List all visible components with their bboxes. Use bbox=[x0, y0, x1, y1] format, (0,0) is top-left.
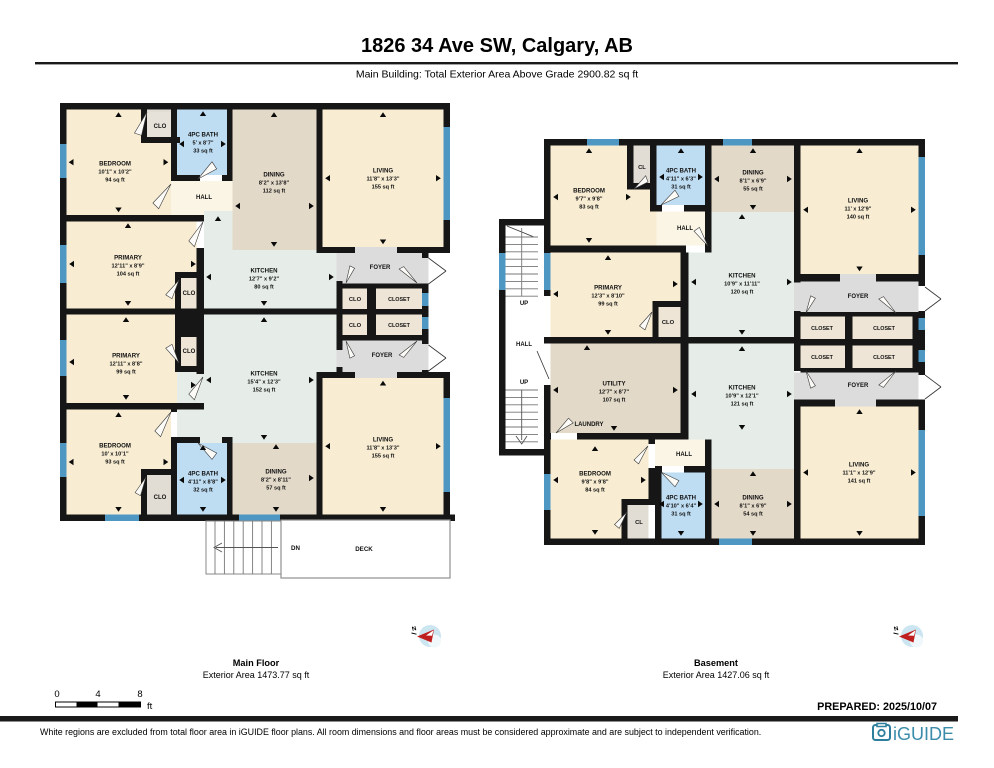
svg-text:5’ x 8’7": 5’ x 8’7" bbox=[192, 141, 213, 147]
svg-text:BEDROOM: BEDROOM bbox=[99, 443, 131, 450]
svg-text:8: 8 bbox=[137, 689, 142, 700]
svg-text:White regions are excluded fro: White regions are excluded from total fl… bbox=[40, 727, 761, 737]
svg-text:FOYER: FOYER bbox=[848, 383, 869, 389]
svg-text:DINING: DINING bbox=[742, 170, 764, 177]
svg-text:UTILITY: UTILITY bbox=[602, 381, 625, 388]
svg-text:121 sq ft: 121 sq ft bbox=[731, 402, 754, 408]
svg-text:FOYER: FOYER bbox=[848, 294, 869, 300]
svg-text:9’7" x 9’8": 9’7" x 9’8" bbox=[575, 197, 602, 203]
svg-text:94 sq ft: 94 sq ft bbox=[105, 178, 125, 184]
svg-text:PRIMARY: PRIMARY bbox=[112, 353, 140, 360]
svg-text:99 sq ft: 99 sq ft bbox=[598, 302, 618, 308]
svg-text:CLO: CLO bbox=[183, 349, 196, 355]
svg-text:84 sq ft: 84 sq ft bbox=[585, 488, 605, 494]
svg-text:FOYER: FOYER bbox=[370, 265, 391, 271]
svg-text:KITCHEN: KITCHEN bbox=[250, 371, 277, 378]
svg-text:112 sq ft: 112 sq ft bbox=[263, 189, 286, 195]
svg-text:80 sq ft: 80 sq ft bbox=[254, 285, 274, 291]
svg-text:10’9" x 11’11": 10’9" x 11’11" bbox=[724, 282, 760, 288]
svg-text:CLO: CLO bbox=[154, 124, 167, 130]
svg-text:Main Building: Total Exterior: Main Building: Total Exterior Area Above… bbox=[356, 69, 638, 81]
svg-text:DINING: DINING bbox=[263, 172, 285, 179]
svg-text:11’1" x 12’9": 11’1" x 12’9" bbox=[843, 471, 876, 477]
svg-text:107 sq ft: 107 sq ft bbox=[603, 398, 626, 404]
svg-text:CLOSET: CLOSET bbox=[388, 297, 411, 303]
svg-text:99 sq ft: 99 sq ft bbox=[116, 370, 136, 376]
svg-text:152 sq ft: 152 sq ft bbox=[253, 388, 276, 394]
svg-text:CLOSET: CLOSET bbox=[873, 326, 896, 332]
svg-text:DINING: DINING bbox=[265, 469, 287, 476]
svg-text:CLOSET: CLOSET bbox=[873, 355, 896, 361]
svg-text:HALL: HALL bbox=[677, 226, 693, 232]
svg-text:10’1" x 10’2": 10’1" x 10’2" bbox=[98, 170, 132, 176]
svg-text:10’ x 10’1": 10’ x 10’1" bbox=[101, 452, 129, 458]
svg-text:12’7" x 8’7": 12’7" x 8’7" bbox=[599, 390, 630, 396]
svg-text:UP: UP bbox=[520, 380, 528, 386]
svg-text:ft: ft bbox=[147, 701, 153, 712]
svg-text:4: 4 bbox=[95, 689, 100, 700]
svg-text:9’8" x 9’8": 9’8" x 9’8" bbox=[581, 480, 608, 486]
svg-text:12’11" x 8’8": 12’11" x 8’8" bbox=[110, 362, 143, 368]
svg-text:93 sq ft: 93 sq ft bbox=[105, 460, 125, 466]
svg-text:Main Floor: Main Floor bbox=[233, 658, 280, 668]
svg-text:155 sq ft: 155 sq ft bbox=[372, 454, 395, 460]
svg-text:DECK: DECK bbox=[355, 546, 373, 553]
svg-text:CLO: CLO bbox=[349, 297, 362, 303]
svg-text:PRIMARY: PRIMARY bbox=[114, 255, 142, 262]
svg-text:12’3" x 8’10": 12’3" x 8’10" bbox=[591, 294, 625, 300]
svg-text:83 sq ft: 83 sq ft bbox=[579, 205, 599, 211]
svg-text:8’2" x 8’11": 8’2" x 8’11" bbox=[261, 478, 291, 484]
svg-text:CLO: CLO bbox=[154, 495, 167, 501]
svg-text:0: 0 bbox=[54, 689, 59, 700]
svg-text:CLO: CLO bbox=[349, 323, 362, 329]
svg-text:141 sq ft: 141 sq ft bbox=[848, 479, 871, 485]
svg-text:32 sq ft: 32 sq ft bbox=[193, 488, 213, 494]
svg-text:CLOSET: CLOSET bbox=[388, 323, 411, 329]
svg-text:LAUNDRY: LAUNDRY bbox=[574, 422, 603, 428]
svg-text:DINING: DINING bbox=[742, 495, 764, 502]
svg-text:4’11" x 6’3": 4’11" x 6’3" bbox=[666, 177, 696, 183]
svg-text:4’10" x 6’4": 4’10" x 6’4" bbox=[666, 504, 697, 510]
svg-text:BEDROOM: BEDROOM bbox=[579, 471, 611, 478]
svg-text:33 sq ft: 33 sq ft bbox=[193, 149, 213, 155]
svg-text:CL: CL bbox=[638, 165, 646, 171]
svg-text:12’7" x 9’2": 12’7" x 9’2" bbox=[249, 277, 280, 283]
svg-text:LIVING: LIVING bbox=[849, 462, 870, 469]
svg-text:15’4" x 12’3": 15’4" x 12’3" bbox=[247, 380, 281, 386]
svg-text:PREPARED: 2025/10/07: PREPARED: 2025/10/07 bbox=[817, 701, 937, 713]
svg-text:HALL: HALL bbox=[196, 195, 212, 201]
svg-text:BEDROOM: BEDROOM bbox=[99, 161, 131, 168]
svg-text:12’11" x 8’9": 12’11" x 8’9" bbox=[112, 264, 145, 270]
svg-text:Exterior Area 1473.77 sq ft: Exterior Area 1473.77 sq ft bbox=[203, 670, 310, 680]
svg-text:155 sq ft: 155 sq ft bbox=[372, 185, 395, 191]
svg-text:55 sq ft: 55 sq ft bbox=[743, 187, 763, 193]
svg-text:4PC BATH: 4PC BATH bbox=[666, 495, 696, 502]
svg-text:BEDROOM: BEDROOM bbox=[573, 188, 605, 195]
svg-text:4’11" x 8’8": 4’11" x 8’8" bbox=[188, 480, 218, 486]
svg-text:11’8" x 13’3": 11’8" x 13’3" bbox=[367, 446, 400, 452]
svg-text:10’9" x 12’1": 10’9" x 12’1" bbox=[725, 394, 759, 400]
svg-text:CLOSET: CLOSET bbox=[811, 326, 834, 332]
svg-text:LIVING: LIVING bbox=[373, 437, 394, 444]
svg-text:140 sq ft: 140 sq ft bbox=[847, 215, 870, 221]
svg-text:8’1" x 6’9": 8’1" x 6’9" bbox=[739, 179, 766, 185]
svg-text:31 sq ft: 31 sq ft bbox=[671, 185, 691, 191]
svg-text:31 sq ft: 31 sq ft bbox=[671, 512, 691, 518]
svg-text:8’2" x 13’8": 8’2" x 13’8" bbox=[259, 181, 290, 187]
svg-text:104 sq ft: 104 sq ft bbox=[117, 272, 140, 278]
svg-text:iGUIDE: iGUIDE bbox=[893, 724, 954, 744]
svg-text:PRIMARY: PRIMARY bbox=[594, 285, 622, 292]
svg-text:4PC BATH: 4PC BATH bbox=[666, 168, 696, 175]
svg-text:CLO: CLO bbox=[183, 291, 196, 297]
svg-text:1826 34 Ave SW, Calgary, AB: 1826 34 Ave SW, Calgary, AB bbox=[361, 35, 633, 57]
svg-text:DN: DN bbox=[291, 545, 300, 552]
svg-text:HALL: HALL bbox=[676, 452, 692, 458]
svg-text:HALL: HALL bbox=[516, 342, 532, 348]
svg-text:11’8" x 13’3": 11’8" x 13’3" bbox=[367, 177, 400, 183]
svg-text:54 sq ft: 54 sq ft bbox=[743, 512, 763, 518]
svg-text:120 sq ft: 120 sq ft bbox=[731, 290, 754, 296]
svg-text:Basement: Basement bbox=[694, 658, 738, 668]
svg-text:KITCHEN: KITCHEN bbox=[728, 273, 755, 280]
svg-text:8’1" x 6’9": 8’1" x 6’9" bbox=[739, 504, 766, 510]
svg-text:11’ x 12’9": 11’ x 12’9" bbox=[845, 207, 872, 213]
svg-text:LIVING: LIVING bbox=[848, 198, 869, 205]
svg-text:LIVING: LIVING bbox=[373, 168, 394, 175]
svg-text:UP: UP bbox=[520, 301, 528, 307]
svg-text:57 sq ft: 57 sq ft bbox=[266, 486, 286, 492]
svg-text:4PC BATH: 4PC BATH bbox=[188, 132, 218, 139]
svg-text:CLOSET: CLOSET bbox=[811, 355, 834, 361]
svg-text:CL: CL bbox=[635, 520, 643, 526]
svg-text:FOYER: FOYER bbox=[372, 353, 393, 359]
svg-text:KITCHEN: KITCHEN bbox=[728, 385, 755, 392]
svg-text:Exterior Area 1427.06 sq ft: Exterior Area 1427.06 sq ft bbox=[663, 670, 770, 680]
svg-text:CLO: CLO bbox=[662, 320, 675, 326]
svg-text:KITCHEN: KITCHEN bbox=[250, 268, 277, 275]
svg-text:4PC BATH: 4PC BATH bbox=[188, 471, 218, 478]
